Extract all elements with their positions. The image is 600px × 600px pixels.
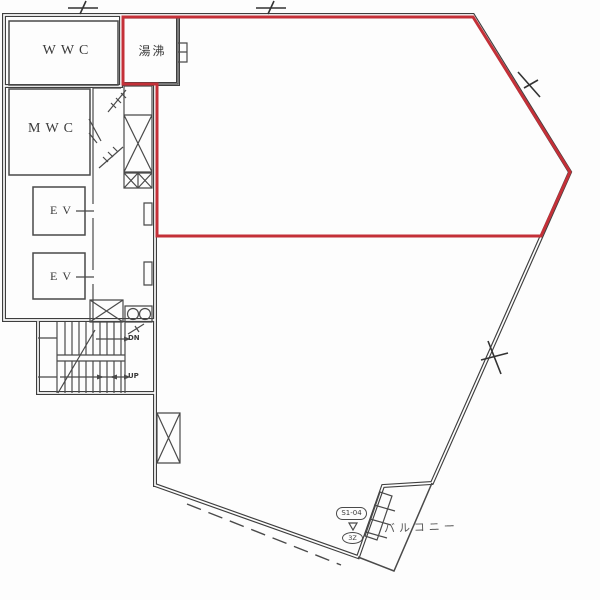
exterior-walls	[4, 15, 570, 557]
stair-up-label: UP	[128, 372, 139, 380]
marker-triangle-icon	[349, 523, 357, 530]
eave-dashed-line	[187, 504, 341, 565]
door-symbols	[89, 90, 144, 334]
sink-bowl-icon	[140, 309, 151, 320]
shaft-and-fixtures	[90, 86, 180, 463]
balcony-label: バルコニー	[384, 518, 459, 537]
stair-down-label: DN	[128, 334, 140, 342]
highlight-boundary	[123, 17, 570, 236]
staircase	[38, 322, 131, 393]
sink-bowl-icon	[128, 309, 139, 320]
floor-plan: WWC MWC 湯沸 EV EV DN UP バルコニー S1-04 3Z	[0, 0, 600, 600]
room-label-ev-lower: EV	[31, 269, 90, 284]
marker-sub-badge: 3Z	[342, 532, 363, 544]
room-label-wwc: WWC	[17, 43, 114, 59]
floor-plan-linework	[0, 0, 600, 600]
room-label-kitchenette: 湯沸	[123, 42, 180, 59]
room-label-mwc: MWC	[6, 121, 95, 137]
room-label-ev-upper: EV	[31, 203, 90, 218]
marker-code-badge: S1-04	[336, 507, 367, 520]
